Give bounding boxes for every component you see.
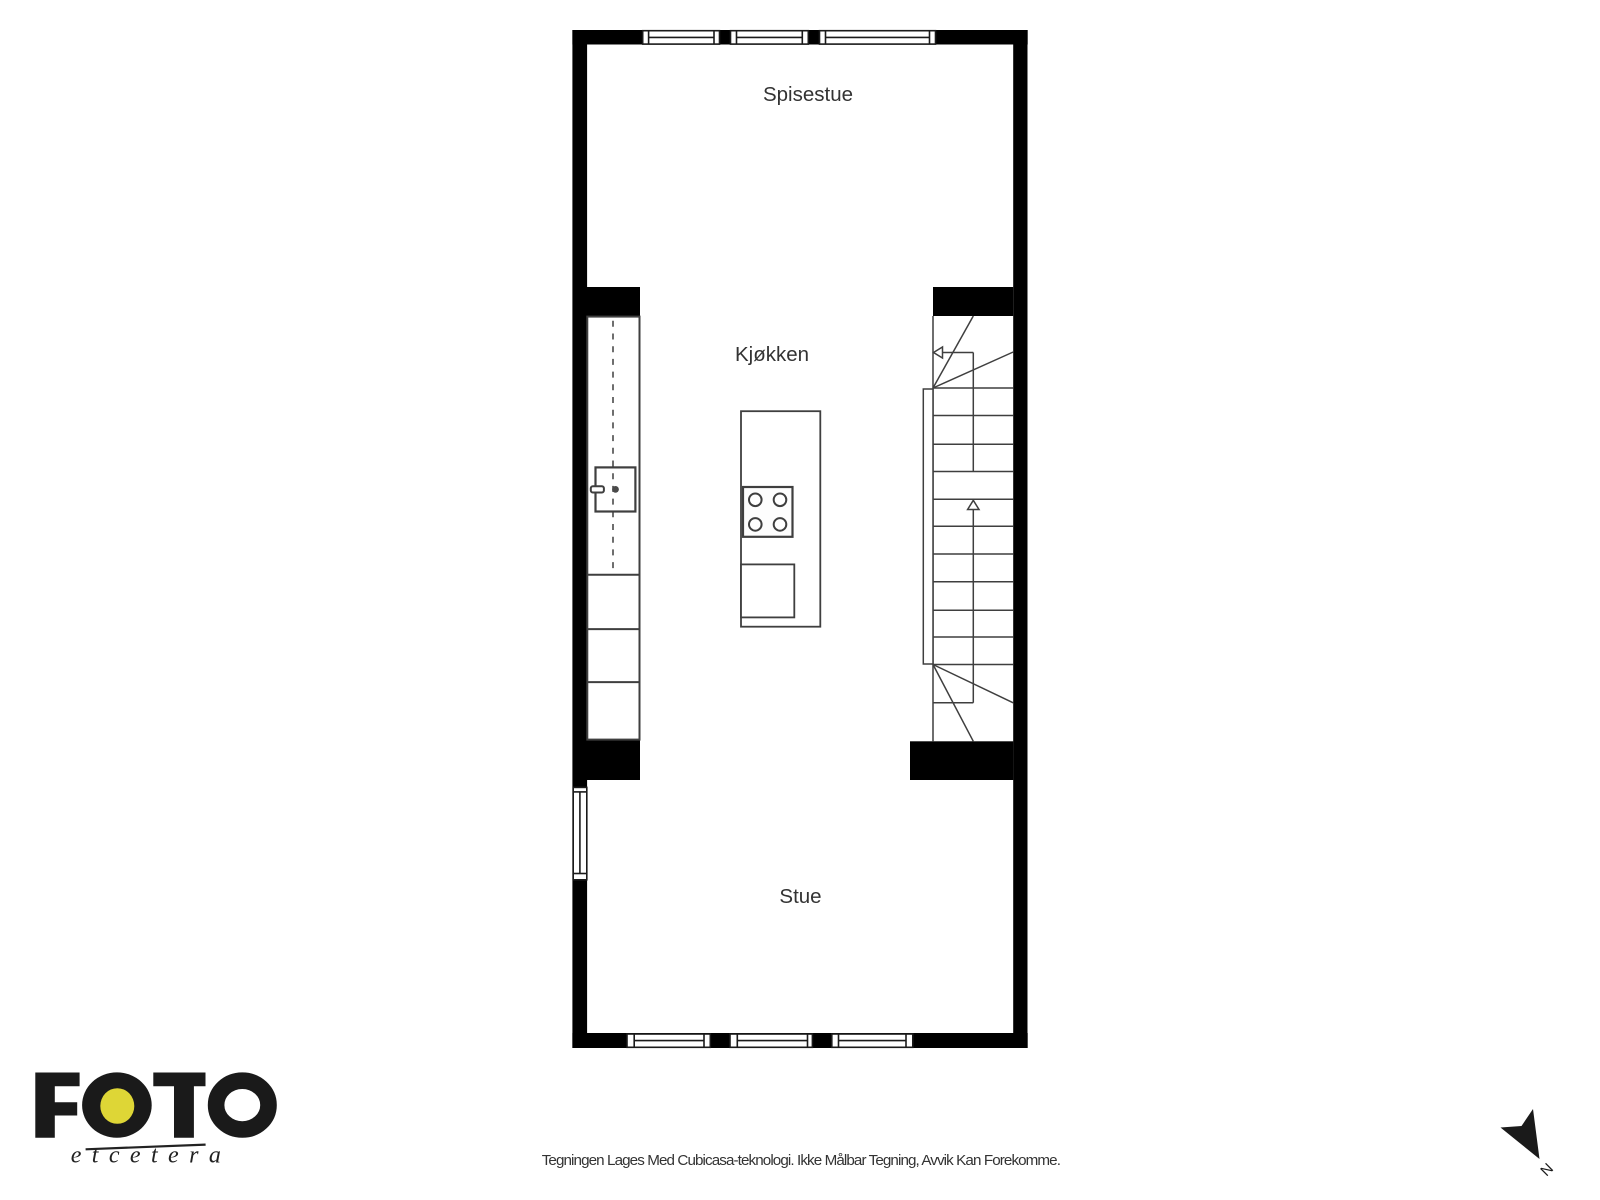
svg-text:Kjøkken: Kjøkken xyxy=(735,343,809,366)
svg-text:Spisestue: Spisestue xyxy=(763,83,853,106)
svg-text:Tegningen Lages Med Cubicasa-t: Tegningen Lages Med Cubicasa-teknologi. … xyxy=(542,1152,1060,1169)
svg-text:Stue: Stue xyxy=(779,885,821,908)
